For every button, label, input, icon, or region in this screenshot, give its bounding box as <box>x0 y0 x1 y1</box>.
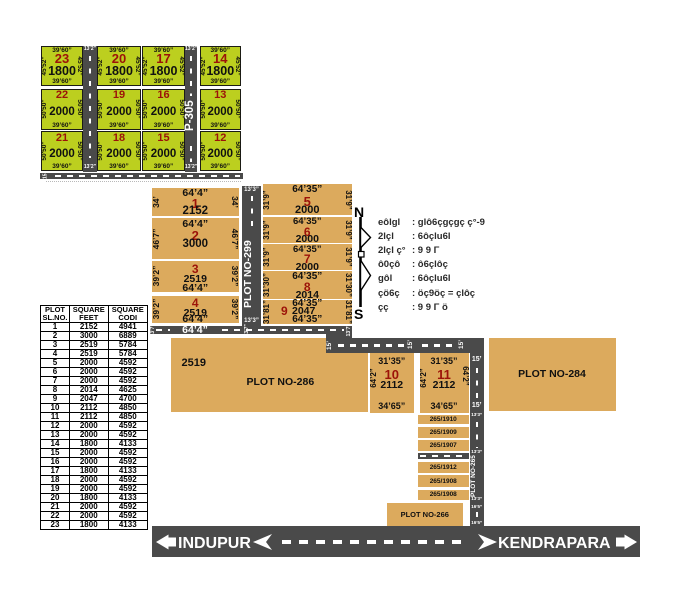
svg-text:INDUPUR: INDUPUR <box>178 535 251 552</box>
svg-text:KENDRAPARA: KENDRAPARA <box>498 535 611 552</box>
svg-text:N: N <box>354 204 364 220</box>
svg-text:S: S <box>354 306 363 322</box>
